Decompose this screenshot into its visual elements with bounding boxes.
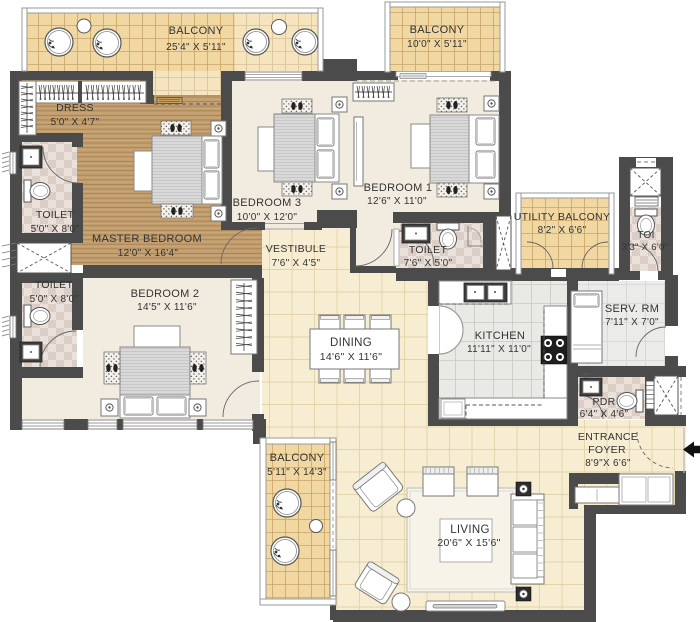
svg-text:PDR: PDR bbox=[592, 396, 615, 408]
svg-text:BALCONY: BALCONY bbox=[410, 24, 465, 36]
svg-text:5'11" X 14'3": 5'11" X 14'3" bbox=[267, 467, 327, 478]
svg-text:8'2" X 6'6": 8'2" X 6'6" bbox=[538, 225, 587, 236]
svg-text:6'4" X 4'6": 6'4" X 4'6" bbox=[580, 409, 629, 420]
svg-text:7'6" X 5'0": 7'6" X 5'0" bbox=[404, 258, 453, 269]
svg-text:TOILET: TOILET bbox=[409, 244, 448, 256]
svg-text:TOILET: TOILET bbox=[36, 209, 75, 221]
svg-text:BEDROOM 2: BEDROOM 2 bbox=[131, 288, 200, 300]
svg-text:14'6" X 11'6": 14'6" X 11'6" bbox=[320, 351, 382, 363]
svg-text:14'5" X 11'6": 14'5" X 11'6" bbox=[137, 302, 197, 313]
svg-text:BEDROOM 3: BEDROOM 3 bbox=[233, 197, 302, 209]
svg-text:7'6" X 4'5": 7'6" X 4'5" bbox=[272, 258, 321, 269]
svg-text:BALCONY: BALCONY bbox=[270, 452, 325, 464]
svg-text:MASTER BEDROOM: MASTER BEDROOM bbox=[92, 233, 202, 245]
svg-text:UTILITY BALCONY: UTILITY BALCONY bbox=[514, 211, 611, 223]
svg-text:12'0" X 16'4": 12'0" X 16'4" bbox=[118, 248, 179, 259]
svg-text:5'0" X 8'0": 5'0" X 8'0" bbox=[30, 294, 79, 305]
svg-text:5'0" X 8'0": 5'0" X 8'0" bbox=[31, 224, 80, 235]
svg-text:BALCONY: BALCONY bbox=[169, 25, 224, 37]
svg-text:8'9"X 6'6": 8'9"X 6'6" bbox=[585, 458, 631, 469]
svg-text:VESTIBULE: VESTIBULE bbox=[266, 243, 326, 255]
svg-text:FOYER: FOYER bbox=[588, 444, 626, 456]
svg-text:20'6" X 15'6": 20'6" X 15'6" bbox=[437, 537, 500, 549]
svg-text:SERV. RM: SERV. RM bbox=[605, 303, 659, 315]
svg-text:DRESS: DRESS bbox=[56, 102, 94, 114]
svg-text:ENTRANCE: ENTRANCE bbox=[578, 431, 638, 443]
svg-text:TOILET: TOILET bbox=[35, 279, 74, 291]
svg-text:7'11" X 7'0": 7'11" X 7'0" bbox=[605, 317, 659, 328]
svg-text:TOI: TOI bbox=[637, 230, 654, 241]
svg-text:11'11" X 11'0": 11'11" X 11'0" bbox=[467, 344, 531, 355]
svg-text:10'0" X 5'11": 10'0" X 5'11" bbox=[407, 39, 467, 50]
svg-text:12'6" X 11'0": 12'6" X 11'0" bbox=[367, 196, 427, 207]
svg-text:25'4" X 5'11": 25'4" X 5'11" bbox=[166, 42, 226, 53]
svg-text:3'3" X 6'0": 3'3" X 6'0" bbox=[622, 242, 668, 253]
svg-text:10'0" X 12'0": 10'0" X 12'0" bbox=[237, 212, 298, 223]
svg-text:LIVING: LIVING bbox=[450, 524, 490, 536]
svg-text:KITCHEN: KITCHEN bbox=[475, 330, 525, 342]
svg-text:5'0" X 4'7": 5'0" X 4'7" bbox=[51, 117, 100, 128]
svg-text:DINING: DINING bbox=[330, 337, 372, 349]
svg-text:BEDROOM 1: BEDROOM 1 bbox=[364, 182, 433, 194]
